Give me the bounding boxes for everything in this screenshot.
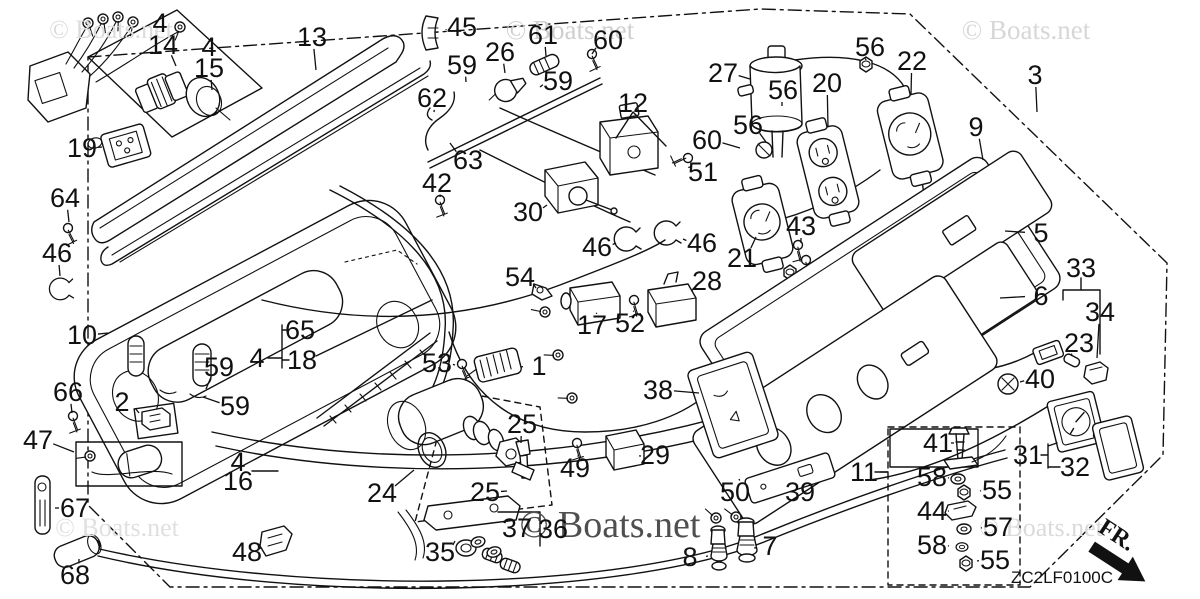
part-label-33: 33: [1066, 253, 1096, 283]
part-label-48: 48: [232, 537, 262, 567]
part-label-36: 36: [538, 514, 568, 544]
screw-40: [998, 374, 1018, 394]
part-label-56: 56: [855, 32, 885, 62]
part-label-62: 62: [417, 83, 447, 113]
part-label-45: 45: [447, 12, 477, 42]
part-label-63: 63: [453, 145, 483, 175]
part-label-4: 4: [249, 343, 264, 373]
part-label-64: 64: [50, 183, 80, 213]
part-label-37: 37: [502, 513, 532, 543]
part-label-55: 55: [982, 475, 1012, 505]
part-label-47: 47: [23, 425, 53, 455]
part-label-58: 58: [917, 530, 947, 560]
part-label-66: 66: [53, 377, 83, 407]
part-label-68: 68: [60, 560, 90, 590]
rubber-45: [422, 16, 438, 50]
leader-line-22: [911, 73, 912, 94]
part-label-49: 49: [560, 453, 590, 483]
part-label-56: 56: [733, 110, 763, 140]
part-label-41: 41: [923, 428, 953, 458]
part-label-10: 10: [67, 320, 97, 350]
plug-7: [737, 518, 757, 562]
leader-line-27: [739, 76, 750, 79]
ignition-switch-group: [380, 371, 552, 522]
part-label-25: 25: [507, 409, 537, 439]
strap-67: [35, 476, 50, 534]
part-label-59: 59: [543, 66, 573, 96]
part-label-21: 21: [727, 243, 757, 273]
receptacle-22: [873, 81, 948, 191]
part-label-65: 65: [285, 315, 315, 345]
part-label-13: 13: [297, 22, 327, 52]
part-label-57: 57: [983, 512, 1013, 542]
part-label-60: 60: [593, 25, 623, 55]
part-label-17: 17: [577, 310, 607, 340]
part-label-12: 12: [618, 88, 648, 118]
part-label-30: 30: [513, 197, 543, 227]
part-label-34: 34: [1085, 297, 1115, 327]
part-label-39: 39: [785, 477, 815, 507]
leader-line-20: [827, 95, 828, 127]
watermark: © Boats.net: [962, 15, 1091, 45]
part-label-55: 55: [980, 545, 1010, 575]
part-label-40: 40: [1025, 364, 1055, 394]
part-label-26: 26: [485, 37, 515, 67]
part-label-58: 58: [917, 462, 947, 492]
leader-line-53: [453, 364, 455, 365]
part-label-1: 1: [531, 351, 546, 381]
part-label-15: 15: [194, 53, 224, 83]
part-label-59: 59: [220, 391, 250, 421]
switch-29: [606, 430, 644, 470]
part-label-27: 27: [708, 58, 738, 88]
leader-line-30: [543, 205, 547, 208]
leader-line-60: [723, 143, 740, 148]
part-label-8: 8: [682, 542, 697, 572]
leader-line-3: [1036, 87, 1037, 112]
part-label-67: 67: [60, 493, 90, 523]
part-label-53: 53: [422, 348, 452, 378]
part-label-50: 50: [720, 477, 750, 507]
part-label-25: 25: [470, 477, 500, 507]
part-label-7: 7: [762, 531, 777, 561]
part-label-23: 23: [1064, 328, 1094, 358]
diagram-code: ZC2LF0100C: [1011, 568, 1113, 587]
part-label-32: 32: [1060, 452, 1090, 482]
exploded-parts-diagram: © Boats.net© Boats.net© Boats.net© Boats…: [0, 0, 1200, 599]
plug-8: [711, 526, 727, 570]
fuel-filter-26: [484, 70, 530, 109]
relay-28: [648, 272, 696, 327]
part-label-44: 44: [917, 496, 947, 526]
leader-line-47: [53, 444, 74, 452]
part-label-43: 43: [786, 211, 816, 241]
part-label-19: 19: [67, 133, 97, 163]
part-label-5: 5: [1033, 218, 1048, 248]
harness-plug: [133, 67, 189, 115]
part-label-38: 38: [643, 375, 673, 405]
part-label-51: 51: [688, 157, 718, 187]
part-label-14: 14: [148, 30, 178, 60]
part-label-61: 61: [528, 20, 558, 50]
leader-line-34: [1097, 324, 1099, 358]
part-label-59: 59: [204, 352, 234, 382]
part-label-16: 16: [223, 466, 253, 496]
part-label-60: 60: [692, 125, 722, 155]
clip-34: [1084, 362, 1108, 384]
part-label-46: 46: [582, 232, 612, 262]
part-label-2: 2: [114, 387, 129, 417]
part-label-46: 46: [42, 238, 72, 268]
part-label-56: 56: [768, 75, 798, 105]
part-label-35: 35: [425, 537, 455, 567]
plate-32: [1092, 415, 1145, 481]
part-label-18: 18: [287, 345, 317, 375]
part-label-42: 42: [422, 168, 452, 198]
clip-44: [945, 501, 976, 520]
part-label-22: 22: [897, 46, 927, 76]
leader-line-13: [314, 49, 316, 70]
part-label-11: 11: [850, 457, 878, 487]
part-label-3: 3: [1027, 60, 1042, 90]
part-label-28: 28: [692, 266, 722, 296]
part-label-6: 6: [1033, 281, 1048, 311]
part-label-20: 20: [812, 68, 842, 98]
part-label-31: 31: [1013, 440, 1043, 470]
part-label-54: 54: [505, 262, 535, 292]
leader-line-24: [395, 470, 414, 486]
part-label-59: 59: [447, 50, 477, 80]
part-label-9: 9: [968, 112, 983, 142]
parts-diagram-page: © Boats.net© Boats.net© Boats.net© Boats…: [0, 0, 1200, 599]
leader-line-40: [1020, 381, 1024, 382]
part-label-52: 52: [615, 308, 645, 338]
clip-48: [260, 526, 292, 556]
part-label-29: 29: [640, 440, 670, 470]
part-label-46: 46: [687, 228, 717, 258]
leader-line-46: [683, 239, 686, 241]
part-label-24: 24: [367, 478, 397, 508]
